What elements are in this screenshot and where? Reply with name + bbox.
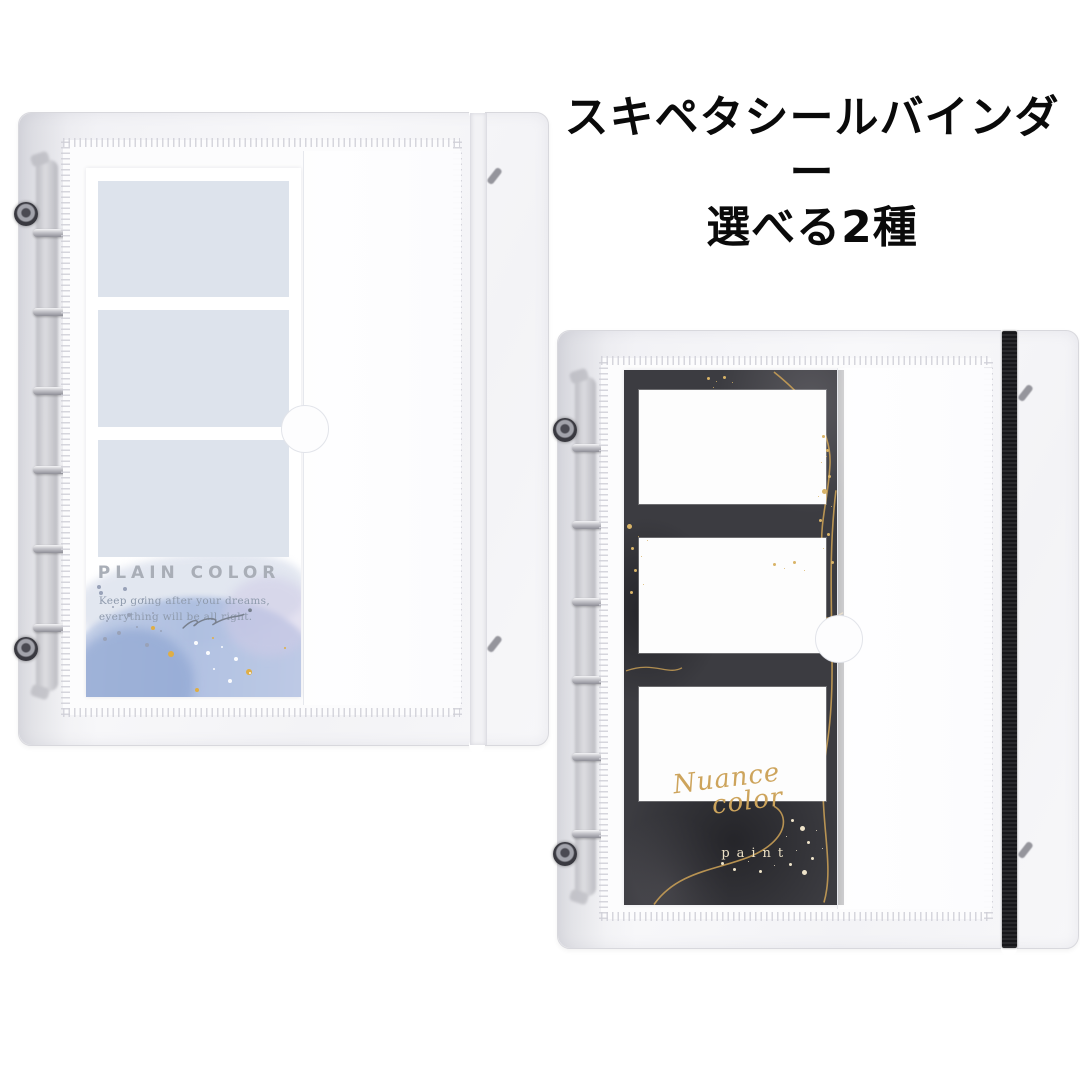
- ring-spine-bar: [575, 377, 597, 895]
- photo-slot: [98, 310, 289, 427]
- perforation-edge-bottom: [601, 912, 991, 921]
- refill-pocket: PLAIN COLOR Keep going after your dreams…: [63, 140, 460, 715]
- pocket-flap: [837, 368, 992, 909]
- snap-rivet-top: [14, 202, 38, 226]
- band-hook-mark-top: [487, 167, 504, 185]
- pocket-flap: [303, 151, 461, 705]
- thumb-notch: [815, 615, 863, 663]
- photo-slot: [639, 390, 826, 505]
- band-hook-mark-bottom: [1018, 840, 1035, 858]
- perforation-edge-top: [63, 138, 460, 147]
- band-hook-mark-top: [1018, 384, 1035, 402]
- cream-splatter: [721, 862, 724, 865]
- page-title: スキペタシールバインダー 選べる2種: [548, 90, 1076, 255]
- gold-splatter: [822, 435, 825, 438]
- snap-rivet-bottom: [14, 637, 38, 661]
- snap-rivet-top: [553, 418, 577, 442]
- photo-slot: [98, 440, 289, 557]
- photo-slot-column: [639, 390, 826, 802]
- scribble-icon: [181, 605, 254, 632]
- binder-nuance-color: Nuance color paint: [557, 330, 1079, 949]
- binder-plain-color: PLAIN COLOR Keep going after your dreams…: [18, 112, 549, 746]
- refill-pocket: Nuance color paint: [601, 358, 991, 919]
- perforation-edge-left: [599, 358, 608, 919]
- sticker-sheet-nuance: Nuance color paint: [624, 370, 844, 905]
- elastic-band-black: [1002, 331, 1017, 948]
- photo-slot: [639, 538, 826, 653]
- ring-spine-bar: [36, 160, 58, 691]
- thumb-notch: [281, 405, 329, 453]
- photo-slot: [98, 181, 289, 298]
- perforation-edge-top: [601, 356, 991, 365]
- perforation-edge-left: [61, 140, 70, 715]
- band-hook-mark-bottom: [487, 635, 504, 653]
- perforation-edge-bottom: [63, 708, 460, 717]
- photo-slot-column: [98, 181, 289, 558]
- splatter-dots-gray: [97, 585, 101, 589]
- page-title-line2: 選べる2種: [548, 200, 1076, 255]
- insert-sub-word: paint: [690, 846, 822, 861]
- page-title-line1: スキペタシールバインダー: [548, 90, 1076, 200]
- sticker-sheet-plain: PLAIN COLOR Keep going after your dreams…: [86, 168, 301, 697]
- insert-title: PLAIN COLOR: [98, 563, 281, 583]
- elastic-band-white: [470, 113, 487, 745]
- splatter-dots-white: [194, 641, 198, 645]
- splatter-dots-gold: [151, 626, 155, 630]
- product-image-canvas: スキペタシールバインダー 選べる2種: [0, 0, 1080, 1080]
